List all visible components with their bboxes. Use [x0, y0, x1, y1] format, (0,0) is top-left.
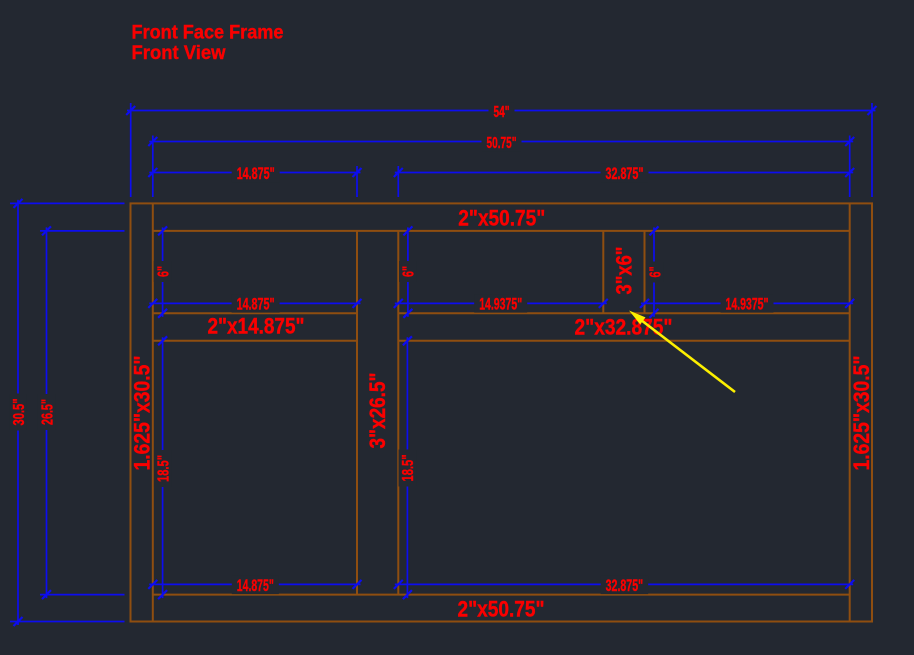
svg-text:26.5": 26.5": [39, 399, 56, 425]
svg-text:32.875": 32.875": [606, 576, 644, 595]
svg-text:14.9375": 14.9375": [479, 295, 522, 314]
svg-text:6": 6": [155, 266, 172, 277]
svg-text:18.5": 18.5": [156, 455, 173, 482]
svg-text:6": 6": [401, 266, 418, 277]
svg-text:6": 6": [647, 267, 664, 278]
svg-text:14.875": 14.875": [237, 295, 275, 314]
svg-text:14.9375": 14.9375": [726, 295, 769, 314]
svg-text:1.625"x30.5": 1.625"x30.5": [849, 356, 874, 471]
svg-text:54": 54": [494, 104, 510, 121]
svg-text:2"x14.875": 2"x14.875": [208, 314, 305, 339]
svg-text:3"x26.5": 3"x26.5": [365, 373, 390, 449]
svg-text:1.625"x30.5": 1.625"x30.5": [130, 356, 155, 471]
svg-text:32.875": 32.875": [606, 164, 644, 183]
svg-text:2"x32.875": 2"x32.875": [575, 315, 673, 340]
svg-text:50.75": 50.75": [487, 135, 517, 152]
svg-text:Front Face Frame: Front Face Frame: [132, 21, 284, 43]
svg-text:2"x50.75": 2"x50.75": [458, 597, 545, 622]
svg-text:14.875": 14.875": [237, 576, 274, 595]
svg-text:2"x50.75": 2"x50.75": [458, 206, 545, 231]
svg-text:30.5": 30.5": [11, 399, 28, 426]
svg-text:3"x6": 3"x6": [611, 247, 636, 295]
svg-text:18.5": 18.5": [400, 455, 417, 482]
svg-text:14.875": 14.875": [237, 164, 275, 183]
svg-text:Front View: Front View: [132, 42, 227, 64]
